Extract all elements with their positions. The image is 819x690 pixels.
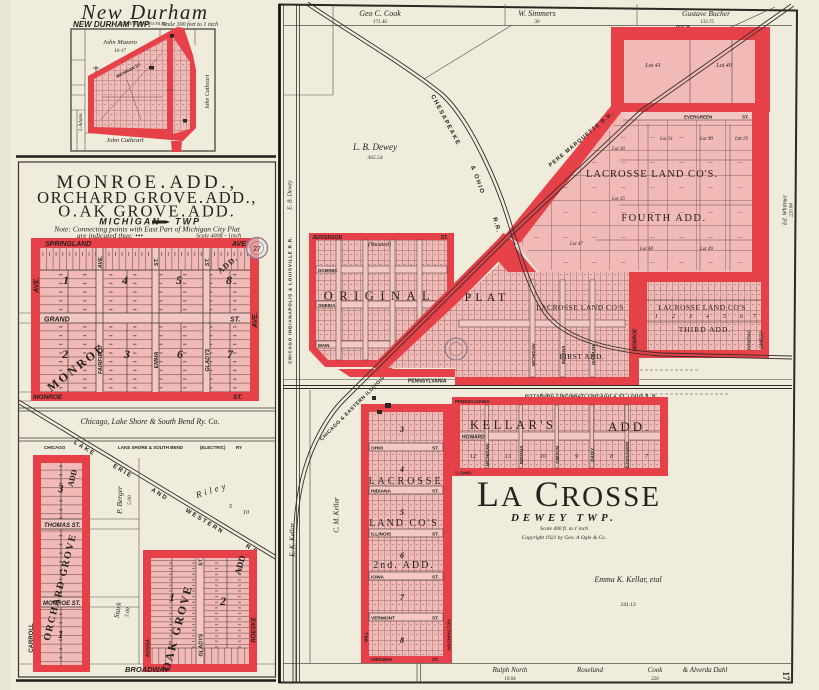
- svg-text:DEWEY TWP.: DEWEY TWP.: [510, 512, 617, 524]
- svg-text:OHIO: OHIO: [371, 446, 384, 452]
- svg-text:9: 9: [575, 454, 578, 460]
- svg-text:12: 12: [470, 454, 476, 460]
- svg-text:5: 5: [176, 273, 182, 287]
- svg-text:ST.: ST.: [742, 115, 749, 120]
- svg-text:17: 17: [781, 672, 791, 682]
- svg-text:365.54: 365.54: [366, 154, 382, 161]
- svg-text:ONEIDA: ONEIDA: [318, 303, 336, 308]
- svg-text:LAND CO'S: LAND CO'S: [369, 518, 439, 529]
- svg-text:10: 10: [243, 510, 249, 516]
- svg-text:3: 3: [399, 425, 404, 434]
- svg-text:KELLAR'S: KELLAR'S: [470, 418, 557, 432]
- svg-text:Gustave Bucher: Gustave Bucher: [682, 9, 730, 18]
- svg-text:10-17: 10-17: [114, 49, 126, 54]
- svg-text:ADD.: ADD.: [608, 419, 651, 434]
- svg-text:8: 8: [226, 273, 232, 287]
- svg-text:W. Simmers: W. Simmers: [518, 9, 555, 18]
- svg-text:ST.: ST.: [432, 489, 439, 495]
- svg-text:241.13: 241.13: [620, 601, 635, 608]
- svg-text:FOURTH ADD.: FOURTH ADD.: [621, 213, 706, 224]
- svg-text:KOSSA: KOSSA: [146, 639, 152, 657]
- svg-text:8: 8: [400, 636, 404, 645]
- svg-text:ST.: ST.: [432, 657, 439, 663]
- svg-text:133.75: 133.75: [700, 20, 714, 25]
- svg-text:L. B. Dewey: L. B. Dewey: [352, 142, 397, 152]
- svg-text:Lot 40: Lot 40: [715, 62, 732, 69]
- svg-text:DAISY: DAISY: [590, 447, 595, 462]
- svg-text:WASHINGTON: WASHINGTON: [447, 619, 452, 651]
- svg-text:AVE.: AVE.: [252, 312, 259, 329]
- svg-text:INDIANA: INDIANA: [371, 489, 392, 495]
- svg-text:Lot 36: Lot 36: [611, 147, 625, 152]
- svg-text:HOWARD: HOWARD: [462, 435, 485, 441]
- svg-text:Scale 300 feet to 1 inch: Scale 300 feet to 1 inch: [162, 21, 218, 28]
- svg-text:ST.: ST.: [432, 446, 439, 452]
- svg-text:PONTIAC: PONTIAC: [747, 329, 752, 350]
- svg-text:MICHIGAN: MICHIGAN: [531, 343, 536, 366]
- svg-text:MICHIGAN: MICHIGAN: [485, 443, 490, 466]
- svg-text:John Mazero: John Mazero: [103, 39, 138, 46]
- svg-text:5: 5: [400, 508, 404, 517]
- svg-text:6: 6: [177, 347, 183, 361]
- svg-text:CARROLL: CARROLL: [29, 623, 35, 653]
- svg-text:5: 5: [229, 504, 232, 510]
- svg-text:EVERGREEN: EVERGREEN: [684, 115, 712, 120]
- svg-text:INDIANA: INDIANA: [561, 346, 566, 365]
- svg-text:Cook: Cook: [648, 666, 664, 674]
- svg-text:LACROSSE LAND CO'S.: LACROSSE LAND CO'S.: [586, 169, 718, 180]
- svg-text:LACROSSE: LACROSSE: [368, 476, 443, 487]
- svg-text:PLAT: PLAT: [465, 290, 510, 304]
- svg-text:7: 7: [227, 347, 234, 361]
- svg-text:4: 4: [121, 273, 128, 287]
- svg-text:LAKE SHORE & SOUTH BEND: LAKE SHORE & SOUTH BEND: [118, 445, 184, 450]
- svg-text:AVE.: AVE.: [98, 255, 104, 269]
- svg-text:1: 1: [63, 273, 69, 287]
- svg-text:2: 2: [219, 594, 226, 608]
- svg-text:ST.: ST.: [441, 235, 449, 241]
- svg-text:E. B. Dewey: E. B. Dewey: [288, 180, 294, 211]
- svg-text:10: 10: [540, 454, 546, 460]
- svg-text:Lot 48: Lot 48: [639, 247, 653, 252]
- svg-text:CHICAGO: CHICAGO: [44, 445, 66, 450]
- svg-text:4: 4: [399, 465, 404, 474]
- svg-text:Lot 49: Lot 49: [699, 247, 713, 252]
- svg-text:SANGAMON: SANGAMON: [625, 441, 630, 468]
- svg-text:220.84: 220.84: [790, 203, 795, 217]
- svg-text:AVE.: AVE.: [231, 241, 248, 248]
- svg-text:MAIN: MAIN: [318, 343, 330, 348]
- svg-text:2: 2: [61, 347, 68, 361]
- svg-text:27: 27: [253, 246, 261, 253]
- svg-text:Roseland: Roseland: [576, 666, 604, 674]
- svg-text:SPRINGLAND: SPRINGLAND: [45, 241, 91, 248]
- svg-text:THIRD ADD.: THIRD ADD.: [679, 325, 732, 334]
- svg-text:GRAND: GRAND: [44, 317, 70, 324]
- svg-text:Geo C. Cook: Geo C. Cook: [359, 9, 401, 18]
- svg-text:1: 1: [655, 314, 658, 320]
- svg-text:MONROE: MONROE: [33, 394, 63, 401]
- svg-text:BROADWAY: BROADWAY: [125, 665, 170, 674]
- svg-text:LACROSSE LAND CO'S: LACROSSE LAND CO'S: [536, 303, 624, 312]
- svg-text:13: 13: [505, 454, 511, 460]
- svg-text:Chicago, Lake Shore & South Be: Chicago, Lake Shore & South Bend Ry. Co.: [80, 417, 219, 426]
- svg-text:MILL: MILL: [364, 632, 369, 643]
- svg-text:NEW DURHAM TWP.: NEW DURHAM TWP.: [73, 20, 151, 29]
- svg-text:JEFFERSON: JEFFERSON: [312, 235, 342, 241]
- svg-text:L.Adams: L.Adams: [79, 113, 84, 132]
- svg-text:Lot 31: Lot 31: [659, 137, 673, 142]
- svg-text:1: 1: [169, 590, 175, 604]
- svg-text:4: 4: [706, 313, 709, 320]
- svg-text:E. K. Kellar: E. K. Kellar: [289, 523, 297, 558]
- svg-text:2nd. ADD.: 2nd. ADD.: [373, 560, 435, 571]
- svg-text:PENNSYLVANIA: PENNSYLVANIA: [408, 379, 447, 385]
- svg-text:ORIGINAL: ORIGINAL: [324, 289, 436, 303]
- svg-text:& Alverda Dahl: & Alverda Dahl: [683, 666, 728, 674]
- svg-text:CHICAGO INDIANAPOLIS & LOUI: CHICAGO INDIANAPOLIS & LOUISVILLE R.R.: [288, 236, 293, 364]
- svg-text:5: 5: [723, 314, 726, 320]
- svg-text:AVE.: AVE.: [34, 277, 41, 294]
- svg-text:8: 8: [610, 454, 613, 460]
- svg-text:INDIANA: INDIANA: [519, 446, 524, 465]
- svg-text:ST.: ST.: [199, 557, 205, 566]
- svg-text:Copyright 1921 by Geo. A Ogle: Copyright 1921 by Geo. A Ogle & Co.: [522, 535, 607, 541]
- svg-text:6: 6: [740, 314, 743, 320]
- svg-text:(Vacated): (Vacated): [368, 241, 391, 248]
- svg-text:OWEGO: OWEGO: [759, 331, 764, 349]
- svg-text:John Cathcart: John Cathcart: [205, 74, 211, 109]
- svg-text:3: 3: [123, 347, 130, 361]
- svg-text:ST.: ST.: [154, 257, 160, 266]
- svg-text:PENNSYLVANIA: PENNSYLVANIA: [455, 399, 490, 404]
- svg-text:ST.: ST.: [432, 575, 439, 581]
- svg-text:THOMAS ST.: THOMAS ST.: [44, 523, 81, 529]
- svg-text:EMMA: EMMA: [154, 352, 160, 369]
- svg-text:ST.: ST.: [432, 616, 439, 622]
- svg-text:2: 2: [672, 314, 675, 320]
- svg-text:C. M. Kellar: C. M. Kellar: [333, 497, 341, 533]
- svg-text:ROESKE: ROESKE: [252, 616, 258, 642]
- svg-text:3: 3: [57, 483, 64, 495]
- svg-text:Emma K. Kellar, etal: Emma K. Kellar, etal: [593, 575, 662, 584]
- svg-text:GLADYS: GLADYS: [205, 348, 211, 371]
- svg-text:Lot 29: Lot 29: [734, 137, 748, 142]
- svg-text:Ed. Whitmer: Ed. Whitmer: [783, 194, 789, 226]
- svg-text:WABASH: WABASH: [591, 344, 596, 365]
- svg-text:1: 1: [58, 629, 64, 641]
- svg-text:GLADYS: GLADYS: [199, 633, 205, 656]
- svg-text:¼ OHIO: ¼ OHIO: [455, 470, 472, 476]
- svg-text:John Cathcart: John Cathcart: [106, 137, 144, 144]
- svg-text:GIBSON: GIBSON: [555, 445, 560, 464]
- svg-text:ST.: ST.: [233, 394, 243, 401]
- svg-text:VERMONT: VERMONT: [371, 616, 395, 622]
- svg-text:LACROSSE LAND CO'S: LACROSSE LAND CO'S: [658, 303, 746, 312]
- svg-text:Lot 41: Lot 41: [644, 62, 661, 69]
- svg-text:30: 30: [535, 20, 541, 25]
- svg-text:Ralph North: Ralph North: [492, 666, 528, 674]
- svg-text:DOMINIC: DOMINIC: [318, 268, 338, 273]
- svg-text:Lot 47: Lot 47: [569, 242, 583, 247]
- svg-text:(ELECTRIC): (ELECTRIC): [200, 445, 226, 450]
- svg-text:RY: RY: [236, 445, 242, 450]
- svg-text:FIRST ADD.: FIRST ADD.: [560, 352, 605, 361]
- svg-text:5.00: 5.00: [127, 495, 133, 505]
- svg-text:MONROE: MONROE: [633, 328, 639, 351]
- svg-text:171.46: 171.46: [373, 20, 387, 25]
- svg-text:220: 220: [651, 677, 659, 682]
- svg-text:ST.: ST.: [205, 257, 211, 266]
- svg-text:3: 3: [688, 314, 692, 320]
- svg-text:ILLINOIS: ILLINOIS: [371, 532, 392, 538]
- svg-text:P. Berger: P. Berger: [115, 486, 124, 515]
- svg-text:19.04: 19.04: [504, 677, 516, 682]
- svg-text:Lot 30: Lot 30: [699, 137, 713, 142]
- svg-text:ST.: ST.: [432, 532, 439, 538]
- svg-text:ST.: ST.: [230, 317, 240, 324]
- svg-text:IOWA: IOWA: [371, 575, 384, 581]
- svg-text:Lot 35: Lot 35: [611, 197, 625, 202]
- svg-text:VIRGINIA: VIRGINIA: [371, 657, 393, 663]
- svg-text:6: 6: [400, 551, 404, 560]
- svg-text:Scale 400 ft. to 1 inch: Scale 400 ft. to 1 inch: [540, 525, 588, 532]
